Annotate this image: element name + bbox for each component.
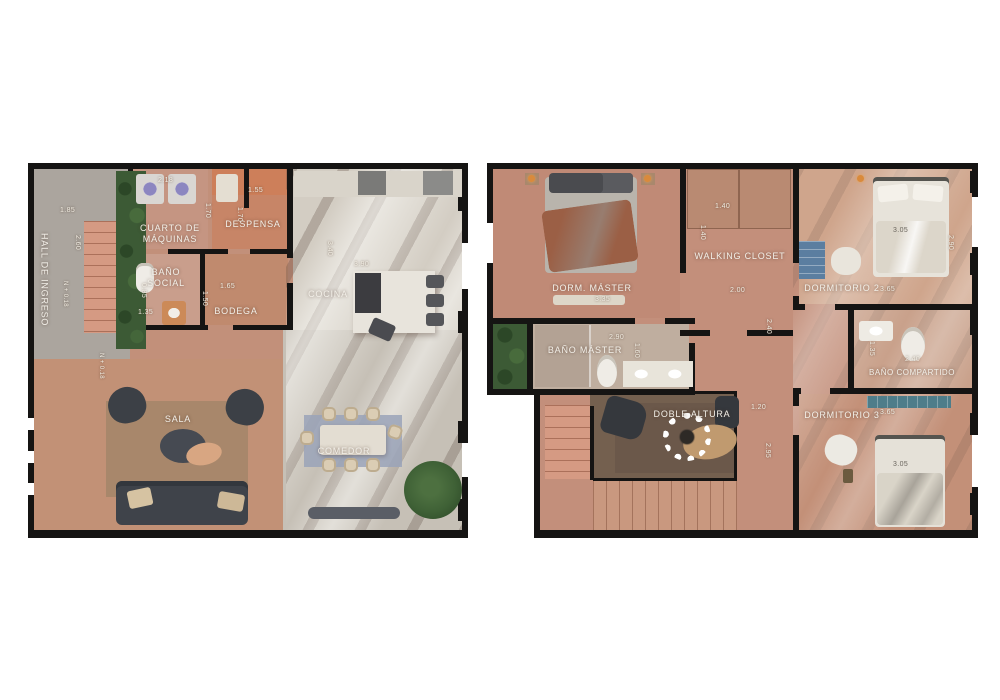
bar-stool	[426, 294, 444, 307]
bed-bench	[553, 295, 625, 305]
dimension: 3.40	[326, 241, 333, 256]
wall	[200, 254, 205, 325]
wall	[233, 325, 290, 330]
dimension: 1.85	[60, 207, 75, 214]
level-marker: N + 0.18	[98, 353, 104, 379]
planter	[404, 461, 462, 519]
wall-bump	[970, 493, 978, 515]
wall	[590, 406, 594, 480]
bar-stool	[426, 275, 444, 288]
room-label-cocina: COCINA	[300, 289, 356, 300]
dining-chair	[322, 458, 336, 472]
dimension: 2.18	[158, 177, 173, 184]
room-label-comedor: COMEDOR	[312, 446, 376, 457]
dimension: 1.70	[204, 203, 211, 218]
lower-stair-run	[593, 481, 737, 530]
bed-pillow	[912, 184, 943, 203]
wall	[680, 163, 686, 273]
upper-stairs	[545, 405, 590, 479]
lamp	[528, 175, 535, 182]
dining-chair	[344, 407, 358, 421]
wall	[848, 310, 854, 394]
window-gap	[462, 243, 468, 289]
lamp	[644, 175, 651, 182]
dimension: 2.90	[609, 334, 624, 341]
dining-chair	[344, 458, 358, 472]
lightwell-plants	[493, 321, 527, 391]
room-label-sala: SALA	[156, 414, 200, 425]
wall-bump	[458, 499, 468, 521]
kitchen-appliance	[358, 171, 386, 195]
room-label-dorm-master: DORM. MÁSTER	[542, 283, 642, 294]
wall	[534, 530, 978, 538]
dimension: 3.90	[354, 261, 369, 268]
closet-dormitorio2	[799, 241, 825, 279]
dimension: 3.05	[893, 227, 908, 234]
wall-bump	[970, 413, 978, 435]
wall	[287, 283, 293, 330]
dimension: 2.60	[74, 235, 81, 250]
wall	[28, 163, 34, 538]
bed-pillow	[877, 183, 909, 202]
double-sink-counter	[623, 361, 693, 387]
dimension: 1.60	[633, 343, 640, 358]
wall	[527, 324, 533, 389]
dimension: 1.20	[751, 404, 766, 411]
bed-master-blanket	[541, 199, 639, 273]
bed-master-pillows	[549, 173, 633, 193]
dimension: 3.05	[893, 461, 908, 468]
room-label-dormitorio2: DORMITORIO 2	[797, 283, 887, 294]
wall-bump	[458, 311, 468, 333]
dining-chair	[322, 407, 336, 421]
lamp	[857, 175, 864, 182]
wall	[168, 249, 228, 254]
wall	[28, 530, 468, 538]
dimension: 3.65	[880, 409, 895, 416]
window-gap	[972, 197, 978, 247]
wall	[665, 318, 695, 324]
wall	[793, 304, 805, 310]
dimension: 1.55	[248, 187, 263, 194]
wall	[487, 318, 635, 324]
dimension: 1.40	[699, 225, 706, 240]
level-marker: N + 0.18	[62, 281, 68, 307]
room-label-despensa: DESPENSA	[218, 219, 288, 230]
bench	[308, 507, 400, 519]
window-gap	[972, 435, 978, 487]
wall	[462, 163, 468, 538]
room-label-dormitorio3: DORMITORIO 3	[797, 410, 887, 421]
dimension: 0.85	[140, 283, 147, 298]
wall	[244, 163, 249, 208]
dimension: 1.35	[868, 341, 875, 356]
sink	[859, 321, 893, 341]
dimension: 2.95	[764, 443, 771, 458]
wall	[487, 389, 540, 395]
toilet	[597, 355, 617, 387]
closet-unit	[687, 169, 739, 229]
bed-duvet	[877, 473, 943, 525]
upper-floor-plan: DORM. MÁSTER WALKING CLOSET DORMITORIO 2…	[487, 163, 978, 538]
window-gap	[28, 418, 34, 430]
floor-plans-image: HALL DE INGRESO CUARTO DE MÁQUINAS DESPE…	[0, 0, 1000, 700]
sink-cabinet	[162, 301, 186, 325]
window-gap	[487, 223, 493, 263]
water-heater	[216, 174, 238, 202]
pouf	[831, 247, 861, 275]
dimension: 3.35	[595, 296, 610, 303]
dimension: 2.00	[730, 287, 745, 294]
dimension: 1.40	[715, 203, 730, 210]
room-label-walking-closet: WALKING CLOSET	[687, 251, 793, 262]
dimension: 1.70	[236, 207, 243, 222]
room-label-bano-social: BAÑO SOCIAL	[144, 267, 188, 290]
decor-item	[843, 469, 853, 483]
dining-chair	[300, 431, 314, 445]
railing	[590, 391, 737, 394]
wall	[830, 388, 978, 394]
wall-bump	[970, 309, 978, 335]
wall	[534, 389, 540, 538]
bed-duvet	[876, 221, 946, 273]
room-label-bano-master: BAÑO MÁSTER	[539, 345, 631, 356]
wall-bump	[970, 171, 978, 193]
wall	[793, 435, 799, 530]
wall	[835, 304, 978, 310]
closet-dormitorio3	[867, 396, 951, 408]
bar-stool	[426, 313, 444, 326]
ground-floor-plan: HALL DE INGRESO CUARTO DE MÁQUINAS DESPE…	[28, 163, 468, 538]
room-label-bano-compartido: BAÑO COMPARTIDO	[852, 368, 972, 378]
window-gap	[28, 451, 34, 463]
room-label-hall: HALL DE INGRESO	[38, 205, 49, 355]
dining-chair	[366, 458, 380, 472]
entry-stairs	[84, 221, 116, 333]
wall	[250, 249, 290, 254]
wall	[287, 163, 293, 258]
wall	[680, 330, 710, 336]
wall-bump	[970, 253, 978, 275]
room-label-doble-altura: DOBLE ALTURA	[642, 409, 742, 420]
dimension: 1.50	[201, 291, 208, 306]
outside-area	[487, 395, 534, 538]
dining-chair	[366, 407, 380, 421]
wall-bump	[458, 421, 468, 443]
dimension: 2.90	[947, 235, 954, 250]
room-label-cuarto-maquinas: CUARTO DE MÁQUINAS	[131, 223, 209, 246]
closet-unit	[739, 169, 791, 229]
dimension: 2.40	[765, 319, 772, 334]
cooktop	[355, 273, 381, 313]
room-label-bodega: BODEGA	[206, 306, 266, 317]
dimension: 1.65	[220, 283, 235, 290]
dimension: 2.40	[905, 356, 920, 363]
wall	[487, 163, 493, 395]
kitchen-appliance	[423, 171, 453, 195]
wall	[793, 394, 799, 406]
window-gap	[28, 483, 34, 495]
dimension: 3.65	[880, 286, 895, 293]
dimension: 1.35	[138, 309, 153, 316]
